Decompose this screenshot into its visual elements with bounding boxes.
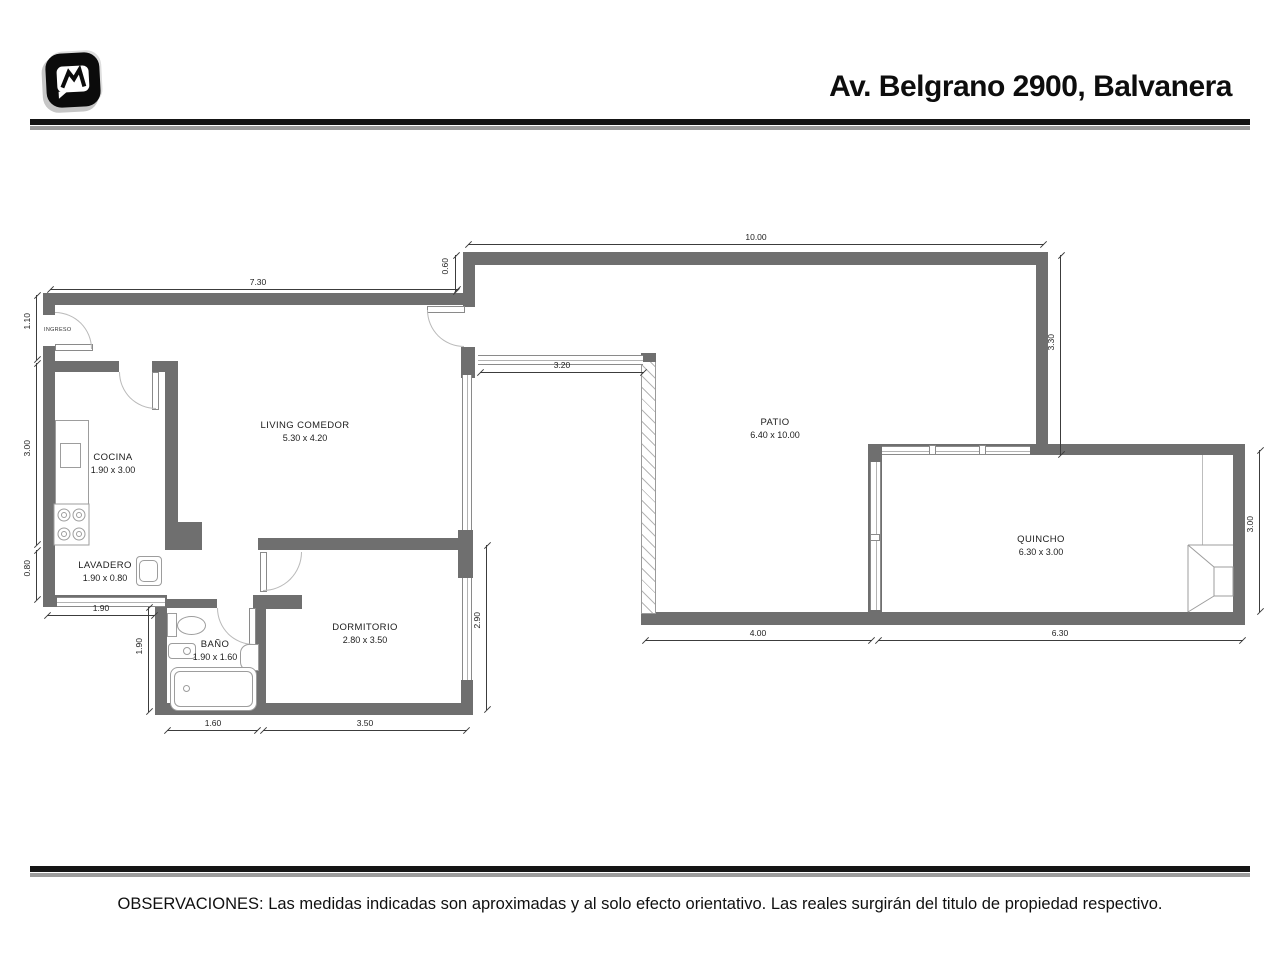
dimension-label: 3.50 — [325, 718, 405, 728]
door-arc — [427, 310, 464, 347]
wall — [258, 538, 467, 550]
dimension-label: 3.00 — [1245, 516, 1255, 533]
window-mullion — [979, 445, 986, 455]
entry-label: INGRESO — [44, 327, 71, 333]
party-wall-hatched — [641, 355, 656, 614]
dimension — [167, 730, 258, 731]
wall — [461, 347, 475, 378]
wall — [165, 522, 202, 550]
parrilla-icon — [1185, 543, 1235, 613]
dimension — [1259, 450, 1260, 612]
door-arc — [119, 372, 156, 409]
dimension — [148, 607, 149, 712]
wall — [55, 361, 119, 372]
window-mullion — [870, 534, 880, 541]
wall — [1036, 252, 1048, 455]
toilet-tank-icon — [167, 613, 177, 637]
dimension — [455, 255, 456, 292]
room-label-bano: BAÑO 1.90 x 1.60 — [165, 639, 265, 662]
dimension — [36, 363, 37, 545]
wall — [167, 599, 217, 608]
dimension — [36, 295, 37, 360]
dimension-label: 3.20 — [522, 360, 602, 370]
dimension-label: 0.80 — [22, 560, 32, 577]
window-mullion — [929, 445, 936, 455]
dimension — [1060, 255, 1061, 455]
header-divider — [30, 119, 1250, 130]
bathtub-drain — [183, 685, 190, 692]
wall — [43, 346, 55, 607]
wall — [458, 530, 473, 578]
logo-tile — [45, 52, 102, 109]
wall — [152, 361, 178, 372]
dimension-label: 10.00 — [716, 232, 796, 242]
dimension-label: 3.00 — [22, 440, 32, 457]
dimension — [878, 640, 1243, 641]
dimension-label: 1.10 — [22, 313, 32, 330]
dimension-label: 1.90 — [61, 603, 141, 613]
wall — [641, 353, 656, 362]
window — [882, 446, 1030, 455]
dimension — [486, 545, 487, 710]
dimension-label: 4.00 — [718, 628, 798, 638]
speech-bubble-icon — [56, 65, 89, 93]
room-label-cocina: COCINA 1.90 x 3.00 — [63, 452, 163, 475]
dimension-label: 6.30 — [1020, 628, 1100, 638]
footer-divider — [30, 866, 1250, 877]
brand-logo — [46, 53, 102, 109]
observations-text: OBSERVACIONES: Las medidas indicadas son… — [0, 895, 1280, 914]
dimension — [263, 730, 467, 731]
chimney-flue-line — [1202, 455, 1203, 545]
dimension-label: 1.60 — [173, 718, 253, 728]
wall — [463, 252, 1048, 265]
zigzag-m-icon — [56, 65, 89, 93]
page-title: Av. Belgrano 2900, Balvanera — [532, 70, 1232, 104]
dimension-label: 0.60 — [440, 258, 450, 275]
window — [462, 578, 472, 680]
wall — [165, 372, 178, 522]
dimension — [47, 615, 155, 616]
room-label-quincho: QUINCHO 6.30 x 3.00 — [981, 534, 1101, 557]
door-arc — [263, 552, 302, 591]
dimension — [36, 550, 37, 600]
dimension-label: 3.30 — [1046, 334, 1056, 351]
dimension-label: 2.90 — [472, 612, 482, 629]
toilet-icon — [177, 616, 206, 635]
room-label-living: LIVING COMEDOR 5.30 x 4.20 — [225, 420, 385, 443]
room-label-dormitorio: DORMITORIO 2.80 x 3.50 — [305, 622, 425, 645]
dimension-label: 7.30 — [218, 277, 298, 287]
wall — [43, 293, 466, 305]
wall — [461, 680, 473, 715]
window — [462, 375, 472, 530]
dimension — [645, 640, 872, 641]
dimension-label: 1.90 — [134, 638, 144, 655]
dimension — [50, 289, 458, 290]
room-label-patio: PATIO 6.40 x 10.00 — [715, 417, 835, 440]
dimension — [468, 244, 1044, 245]
wall — [641, 612, 1245, 625]
stove-icon — [53, 503, 91, 547]
dimension — [480, 372, 644, 373]
room-label-lavadero: LAVADERO 1.90 x 0.80 — [55, 560, 155, 583]
wall — [43, 293, 55, 315]
